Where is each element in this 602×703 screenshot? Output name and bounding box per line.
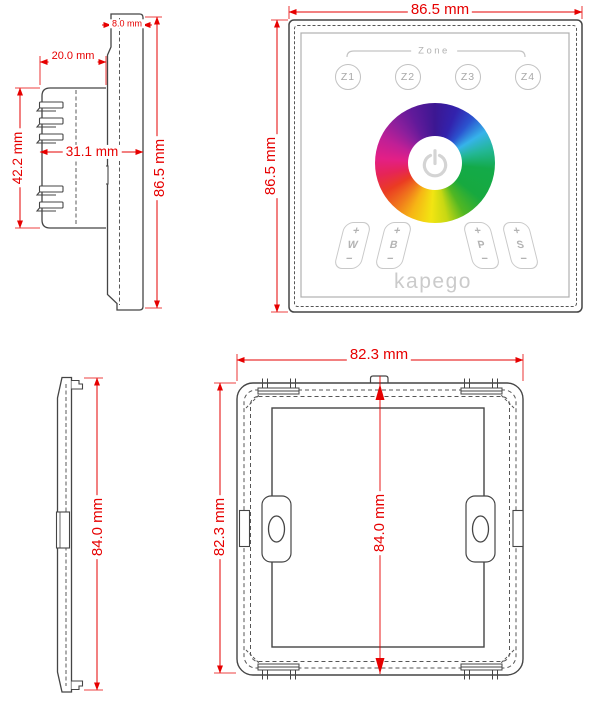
frame-side-view (57, 378, 83, 693)
zone-button-z4-label: Z4 (521, 71, 535, 83)
zone-button-z3: Z3 (455, 64, 481, 90)
s-minus-label: − (519, 254, 528, 265)
w-letter: W (346, 240, 359, 251)
p-plus-label: + (473, 226, 482, 237)
brand-logo: kapego (394, 270, 472, 294)
dim-box-depth: 20.0 mm (49, 51, 98, 63)
dim-frame-height-outer: 82.3 mm (212, 495, 228, 559)
linework-layer (0, 0, 602, 703)
screw-hole-right (473, 516, 489, 542)
dim-front-height: 86.5 mm (263, 134, 279, 198)
frame-bottom-hook (72, 681, 83, 690)
dim-total-depth: 31.1 mm (63, 145, 122, 159)
frame-side-clip (57, 512, 70, 548)
dim-frame-side-height: 84.0 mm (90, 495, 106, 559)
color-wheel-center (408, 136, 462, 190)
dim-front-width: 86.5 mm (408, 2, 472, 18)
s-plus-label: + (512, 226, 521, 237)
glass-panel-profile (108, 14, 144, 310)
b-letter: B (388, 240, 398, 251)
dim-glass-thickness: 8.0 mm (109, 19, 145, 28)
frame-clip-right (513, 511, 523, 547)
drawing-canvas: 8.0 mm 20.0 mm 31.1 mm 42.2 mm 86.5 mm 8… (0, 0, 602, 703)
dim-device-height: 86.5 mm (152, 136, 168, 200)
dim-frame-height-inner: 84.0 mm (372, 491, 388, 555)
zone-button-z1: Z1 (335, 64, 361, 90)
s-letter: S (516, 240, 526, 251)
frame-clip-left (240, 511, 250, 547)
zone-button-z4: Z4 (515, 64, 541, 90)
p-minus-label: − (480, 254, 489, 265)
zone-button-z2: Z2 (395, 64, 421, 90)
b-minus-label: − (385, 254, 394, 265)
dim-frame-width: 82.3 mm (347, 347, 411, 363)
w-minus-label: − (344, 254, 353, 265)
w-plus-label: + (351, 226, 360, 237)
p-letter: P (477, 240, 487, 251)
power-icon (419, 147, 451, 179)
color-wheel (375, 103, 495, 223)
zone-label: Zone (411, 46, 457, 57)
zone-button-z2-label: Z2 (401, 71, 415, 83)
frame-top-hook (72, 381, 83, 390)
zone-button-z1-label: Z1 (341, 71, 355, 83)
screw-hole-left (269, 516, 285, 542)
dim-box-height: 42.2 mm (11, 129, 25, 188)
zone-button-z3-label: Z3 (461, 71, 475, 83)
b-plus-label: + (392, 226, 401, 237)
